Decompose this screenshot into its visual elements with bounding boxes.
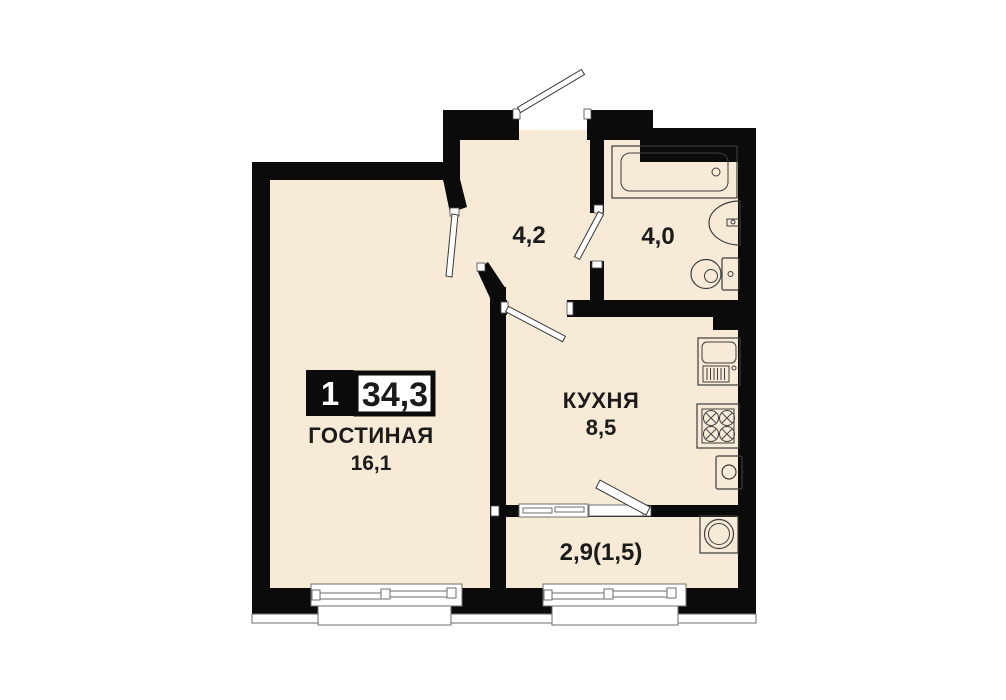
bathroom-jamb-mark (592, 261, 602, 268)
room-hallway-floor (443, 130, 604, 310)
partition-end-mark (491, 506, 499, 516)
badge-rooms-count: 1 (321, 375, 339, 412)
living-room-area: 16,1 (351, 452, 392, 475)
wall-bathroom-bottom (567, 300, 740, 317)
floor-plan-canvas: 1 34,3 ГОСТИНАЯ 16,1 КУХНЯ 8,5 4,2 4,0 2… (0, 0, 1006, 700)
balcony-window (543, 584, 686, 625)
wall-top-left-segment (443, 110, 519, 140)
area-badge: 1 34,3 (306, 370, 433, 416)
living-window-sill (318, 606, 451, 625)
living-room-name: ГОСТИНАЯ (308, 423, 433, 448)
floor-plan: 1 34,3 ГОСТИНАЯ 16,1 КУХНЯ 8,5 4,2 4,0 2… (0, 0, 1006, 700)
bathroom-area: 4,0 (641, 223, 674, 250)
wall-living-kitchen (490, 287, 506, 590)
living-window (311, 584, 462, 625)
kitchen-balcony-window (519, 504, 588, 517)
wall-right (738, 128, 756, 615)
kitchen-area: 8,5 (586, 415, 617, 440)
wall-vent-stub (713, 317, 738, 330)
entrance-jamb-right (584, 109, 591, 119)
hallway-diagonal-mark (477, 263, 485, 271)
entrance-door-leaf (518, 69, 585, 112)
wall-hall-bath-upper (590, 110, 604, 213)
kitchen-name: КУХНЯ (563, 388, 640, 413)
badge-total-area: 34,3 (362, 376, 428, 414)
bathroom-wall-end-mark (567, 302, 573, 315)
hallway-area: 4,2 (512, 222, 545, 249)
wall-living-top (252, 162, 460, 180)
balcony-window-sill (552, 606, 678, 625)
wall-left (252, 162, 270, 615)
balcony-area: 2,9(1,5) (560, 539, 643, 566)
